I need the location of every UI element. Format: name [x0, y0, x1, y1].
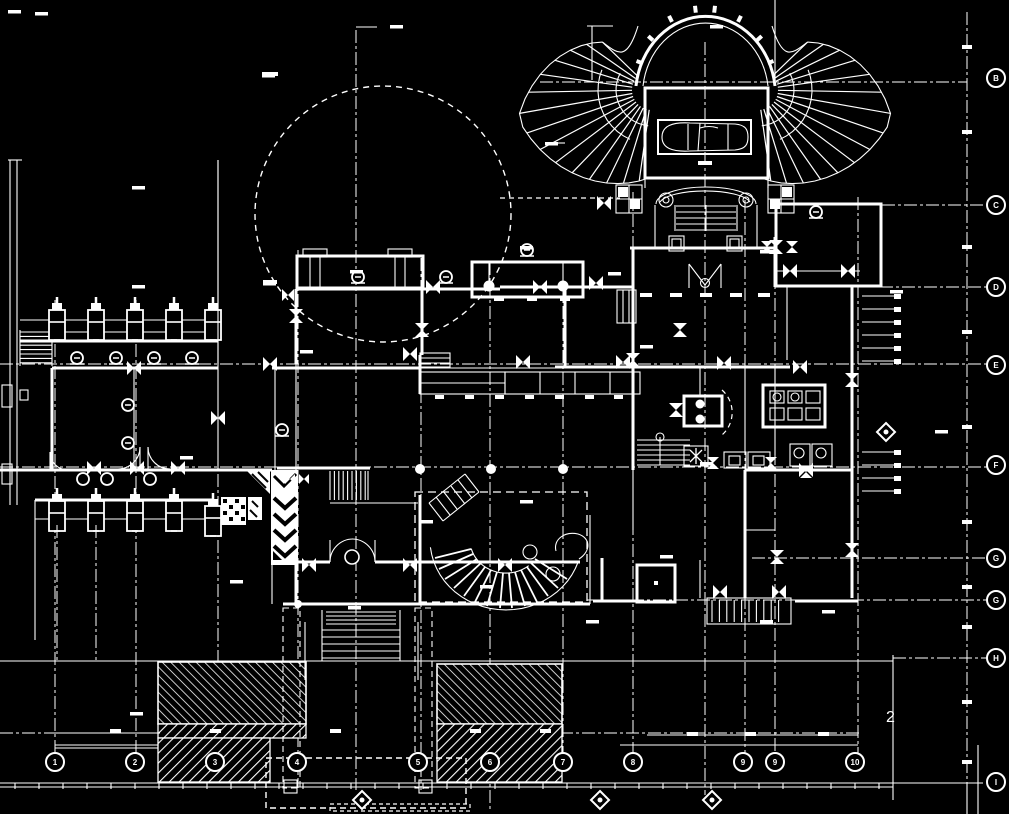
svg-text:5: 5: [416, 758, 421, 767]
svg-text:E: E: [993, 361, 999, 370]
svg-text:10: 10: [851, 758, 860, 767]
svg-text:6: 6: [488, 758, 493, 767]
svg-text:H: H: [993, 654, 999, 663]
svg-text:2: 2: [886, 709, 895, 726]
svg-text:B: B: [993, 74, 999, 83]
svg-text:4: 4: [295, 758, 300, 767]
svg-text:D: D: [993, 283, 999, 292]
svg-text:9: 9: [773, 758, 778, 767]
svg-text:2: 2: [133, 758, 138, 767]
svg-text:G: G: [993, 596, 999, 605]
svg-text:3: 3: [213, 758, 218, 767]
svg-text:F: F: [994, 461, 999, 470]
svg-text:7: 7: [561, 758, 566, 767]
svg-text:8: 8: [631, 758, 636, 767]
svg-text:C: C: [993, 201, 999, 210]
svg-text:G: G: [993, 554, 999, 563]
svg-text:I: I: [995, 778, 997, 787]
svg-text:1: 1: [53, 758, 58, 767]
svg-text:9: 9: [741, 758, 746, 767]
